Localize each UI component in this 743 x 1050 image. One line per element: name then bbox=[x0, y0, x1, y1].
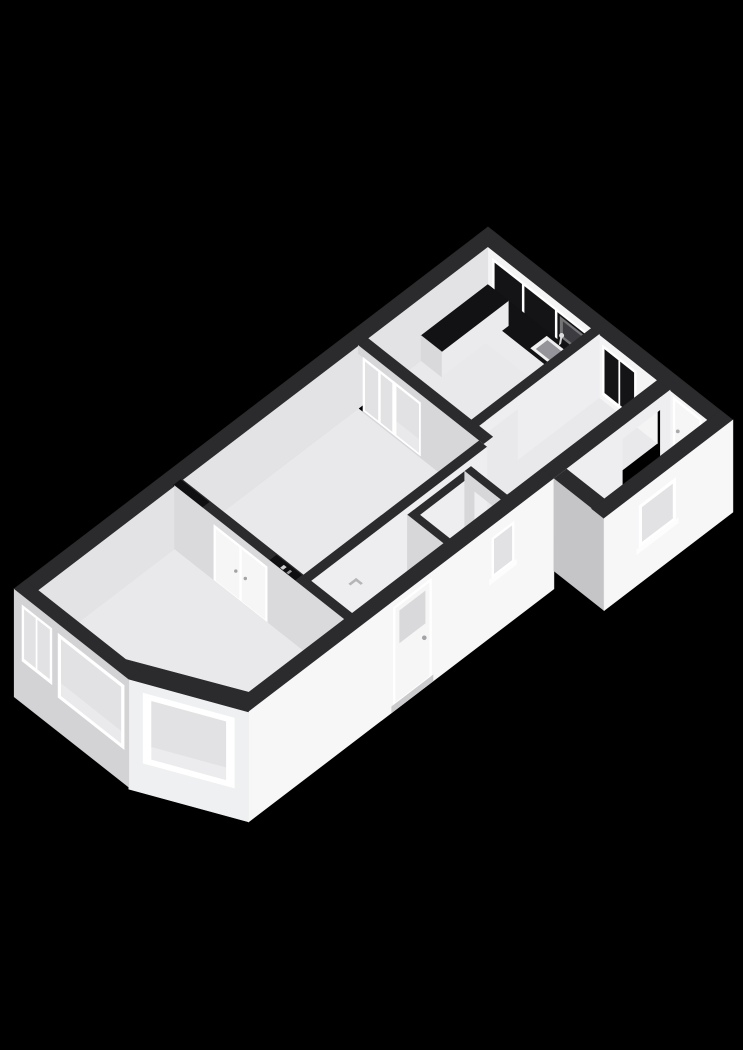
right-room-door-handle bbox=[676, 430, 679, 433]
glazed-door-pane bbox=[365, 362, 378, 420]
floor-plan-3d-render bbox=[0, 0, 743, 1050]
end-window1-glass bbox=[38, 620, 50, 678]
front-door-handle bbox=[422, 636, 426, 640]
door-handle bbox=[244, 577, 247, 580]
end-window1-glass bbox=[24, 610, 35, 668]
kitchen-faucet-head bbox=[559, 333, 563, 337]
glazed-door-pane bbox=[381, 375, 392, 432]
door-handle bbox=[234, 570, 237, 573]
